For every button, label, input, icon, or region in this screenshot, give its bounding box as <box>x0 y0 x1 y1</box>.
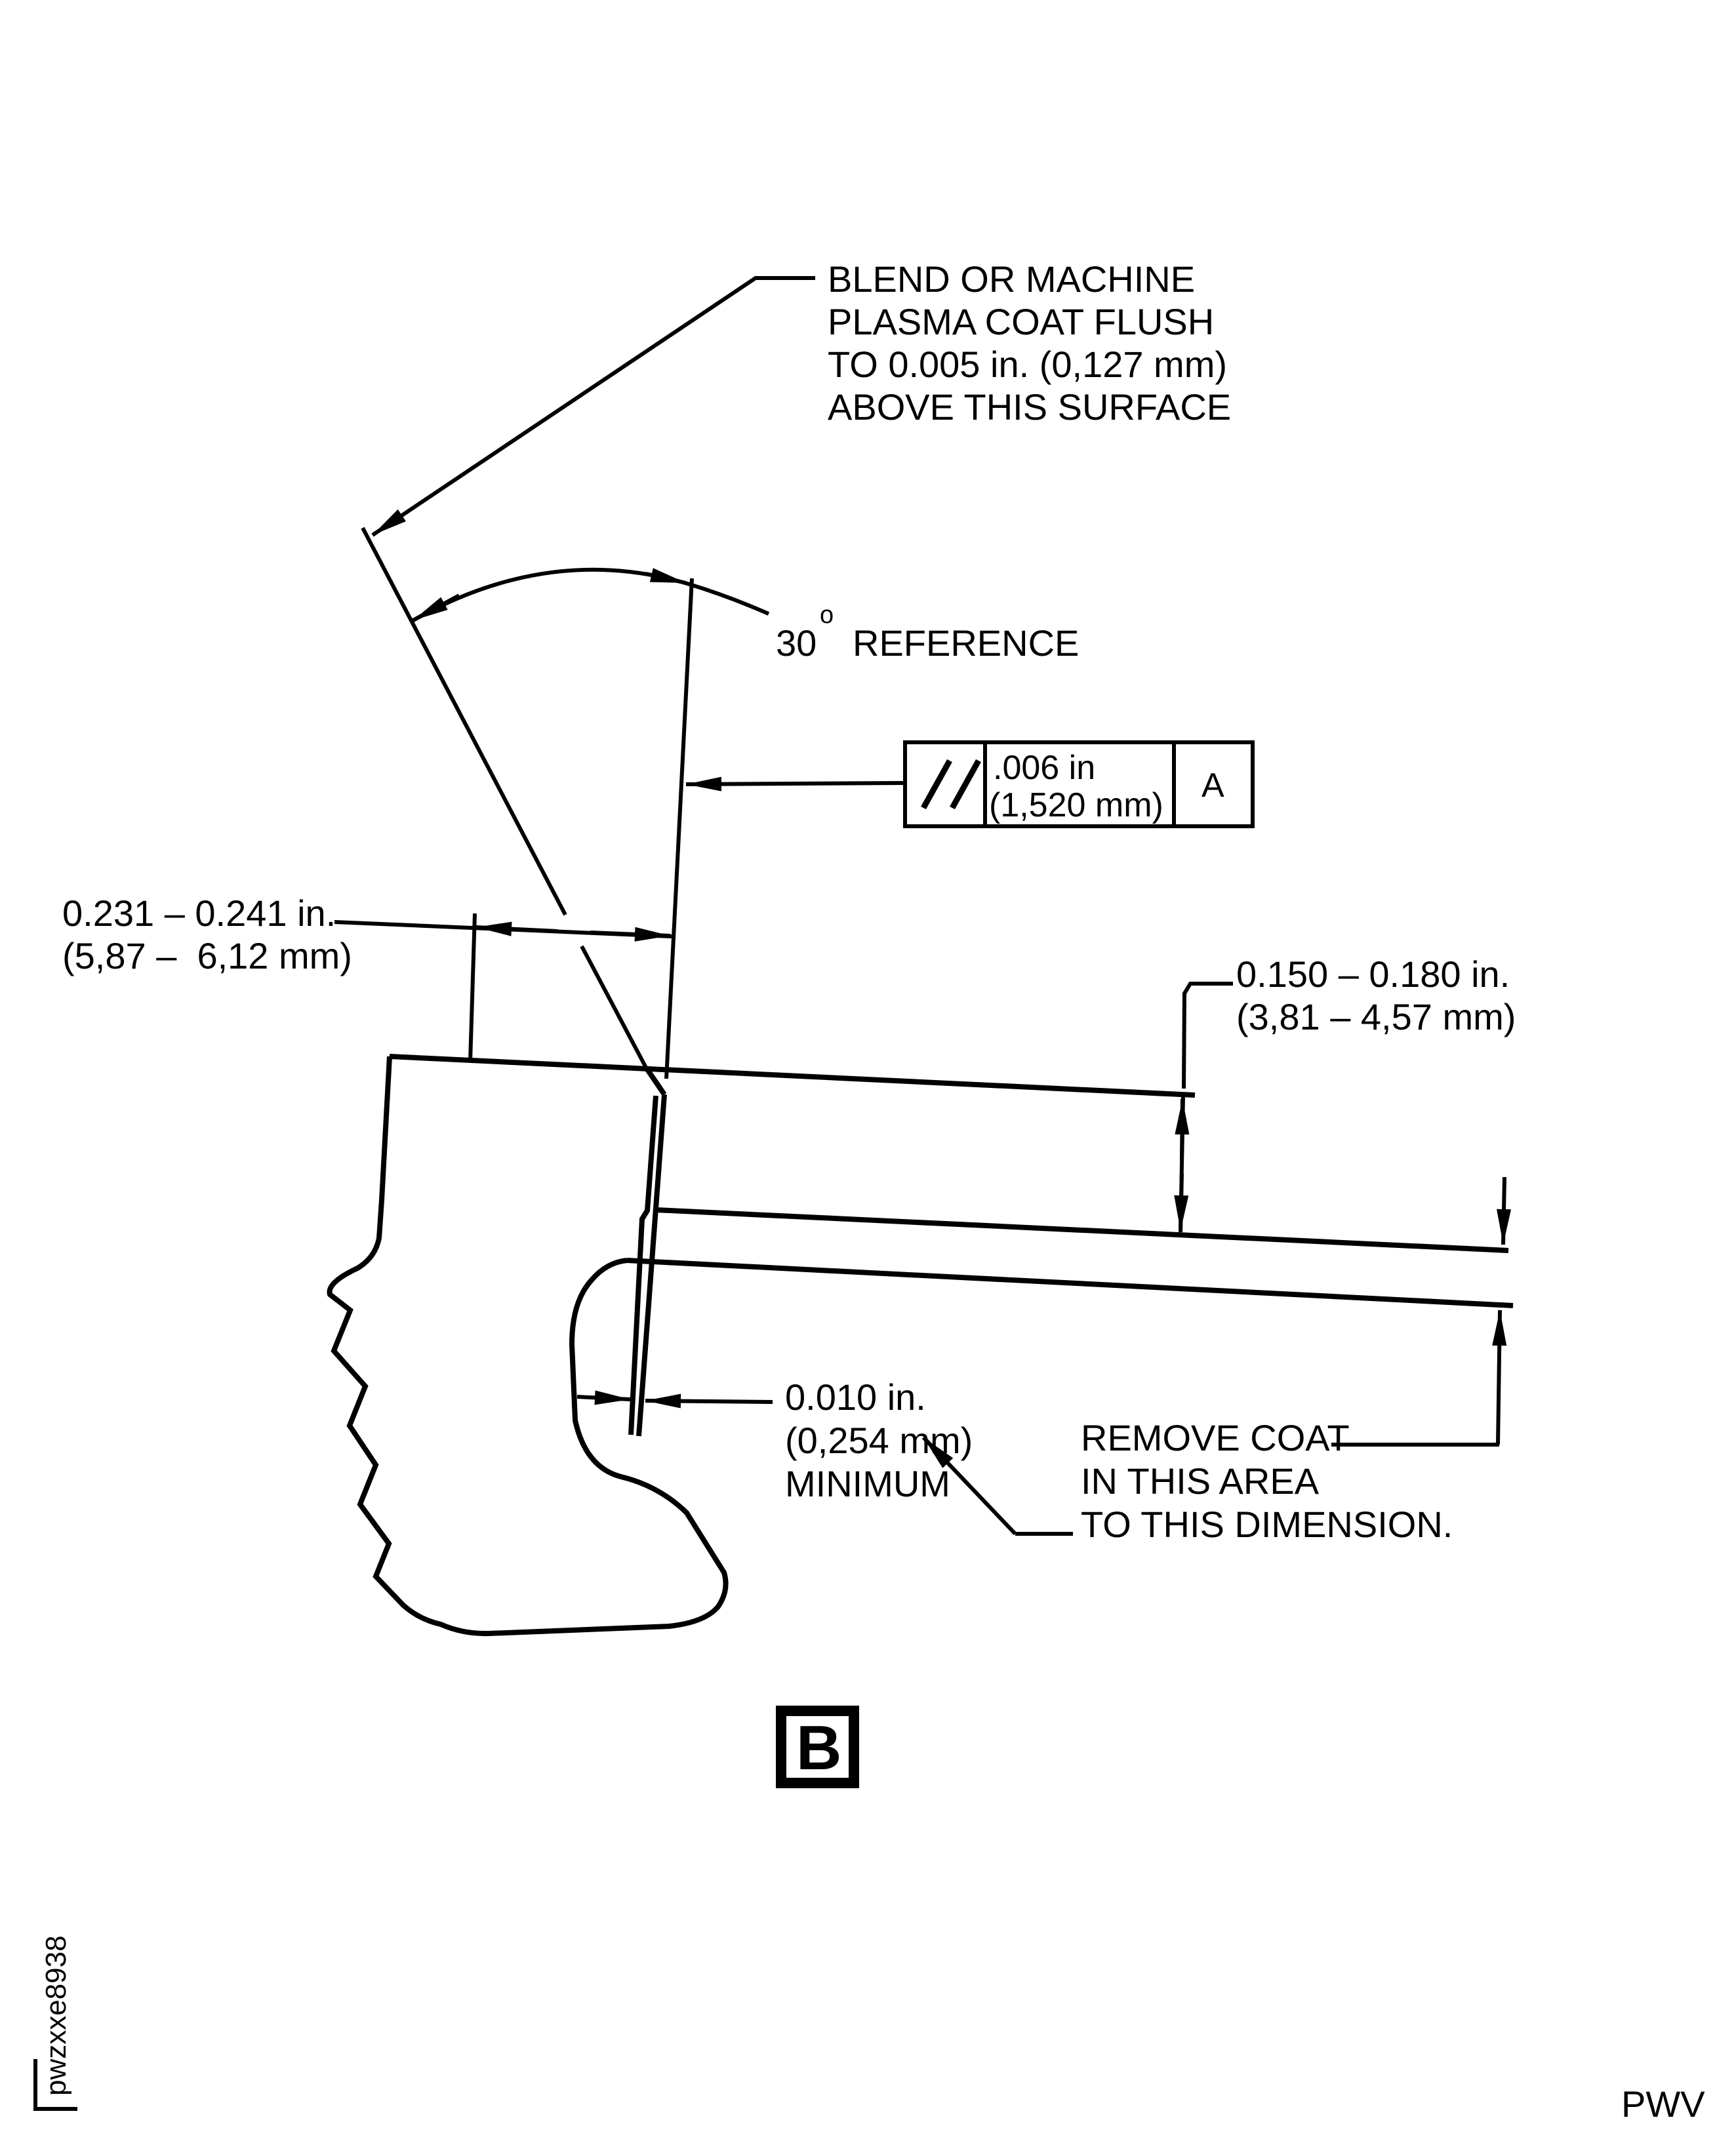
remove-coat-group: REMOVE COAT IN THIS AREA TO THIS DIMENSI… <box>923 1177 1504 1545</box>
min-dim-line3: MINIMUM <box>785 1463 950 1504</box>
fcf-tolerance-line2: (1,520 mm) <box>989 786 1163 824</box>
coat-dim-leader <box>1184 984 1233 1089</box>
minimum-dimension-group: 0.010 in. (0,254 mm) MINIMUM <box>577 1376 973 1504</box>
footer-group: pwzxxe8938 PWV <box>35 1935 1705 2125</box>
width-arrow-left <box>476 927 557 931</box>
remove-note-line1: REMOVE COAT <box>1081 1417 1350 1458</box>
fcf-tolerance-line1: .006 in <box>993 749 1095 787</box>
remove-arrow-up <box>1498 1310 1500 1445</box>
parallelism-icon <box>923 761 979 808</box>
min-dim-line1: 0.010 in. <box>785 1376 926 1418</box>
angle-arc-arrow-right <box>646 574 686 583</box>
angle-reference-group: 30 o REFERENCE <box>363 528 1079 1079</box>
coat-dim-line1: 0.150 – 0.180 in. <box>1236 953 1510 995</box>
blend-note-line4: ABOVE THIS SURFACE <box>828 386 1231 428</box>
min-dim-arrow-left <box>577 1397 630 1399</box>
remove-arrow-down <box>1503 1177 1504 1245</box>
page-code: PWV <box>1621 2083 1705 2125</box>
surface-line <box>390 1056 1195 1095</box>
manual-figure-page: 30 o REFERENCE BLEND OR MACHINE PLASMA C… <box>0 0 1736 2143</box>
coat-dimension-group: 0.150 – 0.180 in. (3,81 – 4,57 mm) <box>1181 953 1516 1232</box>
blend-note-leader <box>373 278 815 535</box>
blend-note-group: BLEND OR MACHINE PLASMA COAT FLUSH TO 0.… <box>373 258 1231 535</box>
angle-arc-arrow-left <box>413 595 459 620</box>
degree-symbol: o <box>820 601 834 629</box>
remove-note-line3: TO THIS DIMENSION. <box>1081 1504 1453 1545</box>
detail-flag: B <box>781 1711 854 1783</box>
coat-dim-line2: (3,81 – 4,57 mm) <box>1236 996 1516 1037</box>
fcf-leader <box>686 783 905 784</box>
blend-note-line1: BLEND OR MACHINE <box>828 258 1195 300</box>
engineering-drawing: 30 o REFERENCE BLEND OR MACHINE PLASMA C… <box>0 0 1736 2143</box>
angle-arc <box>412 570 769 621</box>
body-break-outline <box>330 1056 726 1633</box>
detail-letter: B <box>796 1713 841 1783</box>
angle-label: REFERENCE <box>853 622 1079 664</box>
part-outline <box>330 1056 1513 1633</box>
min-dim-line2: (0,254 mm) <box>785 1420 973 1461</box>
coat-outer-surface <box>627 1260 1513 1306</box>
feature-control-frame: .006 in (1,520 mm) A <box>686 742 1253 826</box>
blend-note-line3: TO 0.005 in. (0,127 mm) <box>828 344 1227 385</box>
width-extension-line <box>470 913 475 1062</box>
coat-dim-arrow-up <box>1182 1099 1182 1159</box>
width-dim-line2: (5,87 – 6,12 mm) <box>62 935 352 976</box>
width-dimension-group: 0.231 – 0.241 in. (5,87 – 6,12 mm) <box>62 892 672 1062</box>
width-dim-line1: 0.231 – 0.241 in. <box>62 892 336 934</box>
fcf-datum-letter: A <box>1201 767 1224 805</box>
blend-note-line2: PLASMA COAT FLUSH <box>828 301 1214 342</box>
min-dim-arrow-right <box>645 1401 773 1402</box>
coat-dim-arrow-down <box>1181 1174 1182 1231</box>
reference-line <box>666 578 692 1079</box>
angle-value: 30 <box>776 622 817 664</box>
coat-removal-surface <box>656 1210 1508 1251</box>
remove-note-line2: IN THIS AREA <box>1081 1460 1320 1502</box>
blend-surface-extension-line <box>363 528 646 1068</box>
watermark-text: pwzxxe8938 <box>40 1935 72 2096</box>
